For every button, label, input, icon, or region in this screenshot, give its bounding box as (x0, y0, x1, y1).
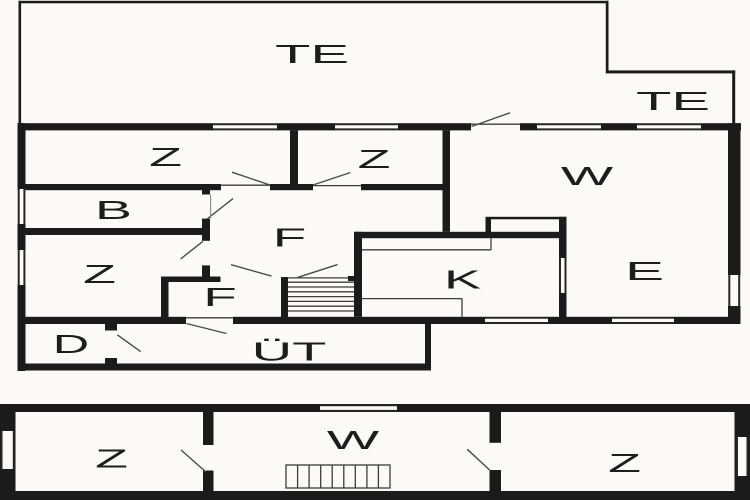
svg-text:D: D (53, 330, 89, 359)
svg-text:Z: Z (95, 444, 128, 473)
svg-text:E: E (625, 256, 664, 285)
svg-text:B: B (95, 196, 132, 225)
svg-text:F: F (273, 223, 307, 252)
svg-text:TE: TE (636, 86, 710, 116)
svg-text:Z: Z (358, 145, 391, 174)
svg-text:TE: TE (275, 39, 349, 69)
svg-text:Z: Z (608, 449, 641, 478)
svg-text:K: K (444, 266, 481, 295)
svg-text:W: W (327, 426, 379, 455)
svg-text:W: W (561, 162, 613, 191)
svg-text:Z: Z (83, 260, 116, 289)
svg-text:ÜT: ÜT (252, 337, 327, 366)
svg-text:Z: Z (149, 143, 182, 172)
svg-text:F: F (203, 283, 237, 312)
